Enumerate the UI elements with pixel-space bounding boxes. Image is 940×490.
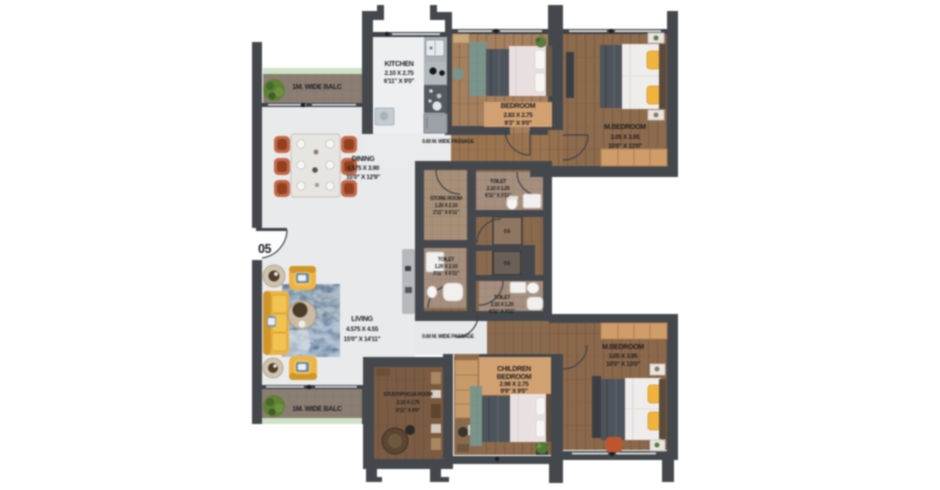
svg-text:2.98 X 2.75: 2.98 X 2.75 bbox=[500, 381, 530, 388]
svg-text:0.5: 0.5 bbox=[504, 261, 511, 267]
svg-text:M.BEDROOM: M.BEDROOM bbox=[602, 344, 644, 351]
svg-text:4.575 X 3.90: 4.575 X 3.90 bbox=[347, 165, 380, 172]
svg-text:10'0" X 13'0": 10'0" X 13'0" bbox=[606, 361, 640, 368]
svg-text:9'3" X 9'0": 9'3" X 9'0" bbox=[504, 120, 532, 127]
svg-text:1M. WIDE BALC: 1M. WIDE BALC bbox=[292, 84, 342, 91]
svg-text:DINING: DINING bbox=[352, 156, 376, 163]
svg-text:1M. WIDE BALC: 1M. WIDE BALC bbox=[292, 406, 342, 413]
svg-text:2.10 X 1.20: 2.10 X 1.20 bbox=[487, 186, 510, 192]
svg-text:15'0" X 14'11": 15'0" X 14'11" bbox=[344, 336, 381, 343]
svg-text:1.20 X 2.10: 1.20 X 2.10 bbox=[435, 264, 458, 270]
svg-text:BEDROOM: BEDROOM bbox=[501, 103, 536, 110]
svg-text:BEDROOM: BEDROOM bbox=[497, 374, 532, 381]
svg-text:CHILDREN: CHILDREN bbox=[497, 366, 531, 373]
svg-text:0.6: 0.6 bbox=[504, 229, 511, 235]
svg-text:KITCHEN: KITCHEN bbox=[384, 61, 413, 68]
svg-text:LIVING: LIVING bbox=[351, 316, 373, 323]
svg-text:0.60 M. WIDE PASSAGE: 0.60 M. WIDE PASSAGE bbox=[422, 139, 475, 145]
svg-text:STORE ROOM: STORE ROOM bbox=[430, 196, 462, 202]
svg-text:TOILET: TOILET bbox=[494, 295, 511, 301]
svg-text:2.10 X 1.20: 2.10 X 1.20 bbox=[491, 302, 514, 308]
svg-text:10'0" X 13'0": 10'0" X 13'0" bbox=[608, 143, 642, 150]
svg-text:6'11" X 3'11": 6'11" X 3'11" bbox=[485, 193, 512, 199]
svg-text:2.10 X 2.75: 2.10 X 2.75 bbox=[397, 400, 420, 406]
svg-text:6'11" X 9'0": 6'11" X 9'0" bbox=[396, 408, 421, 414]
svg-text:M.BEDROOM: M.BEDROOM bbox=[604, 124, 646, 131]
svg-text:05: 05 bbox=[258, 242, 271, 256]
svg-text:TOILET: TOILET bbox=[438, 257, 455, 263]
svg-text:4.575 X 4.55: 4.575 X 4.55 bbox=[346, 326, 379, 333]
svg-text:STUDY/POOJA ROOM: STUDY/POOJA ROOM bbox=[384, 392, 433, 398]
svg-text:15'0" X 12'9": 15'0" X 12'9" bbox=[346, 174, 380, 181]
svg-text:2.10 X 2.75: 2.10 X 2.75 bbox=[385, 70, 415, 77]
svg-text:1.20 X 2.10: 1.20 X 2.10 bbox=[435, 203, 458, 209]
svg-text:3'11" X 6'11": 3'11" X 6'11" bbox=[433, 271, 460, 277]
svg-text:6'11" X 9'0": 6'11" X 9'0" bbox=[384, 78, 415, 85]
svg-text:2'11" X 6'11": 2'11" X 6'11" bbox=[433, 210, 460, 216]
svg-text:2.83 X 2.75: 2.83 X 2.75 bbox=[504, 112, 534, 119]
svg-text:0.60 M. WIDE PASSAGE: 0.60 M. WIDE PASSAGE bbox=[422, 334, 475, 340]
svg-text:3.05 X 3.95: 3.05 X 3.95 bbox=[611, 134, 641, 141]
svg-text:9'9" X 9'0": 9'9" X 9'0" bbox=[500, 388, 528, 395]
svg-text:3.05 X 3.95: 3.05 X 3.95 bbox=[609, 353, 639, 360]
svg-text:TOILET: TOILET bbox=[490, 179, 507, 185]
svg-text:6'11" X 3'11": 6'11" X 3'11" bbox=[489, 309, 516, 315]
